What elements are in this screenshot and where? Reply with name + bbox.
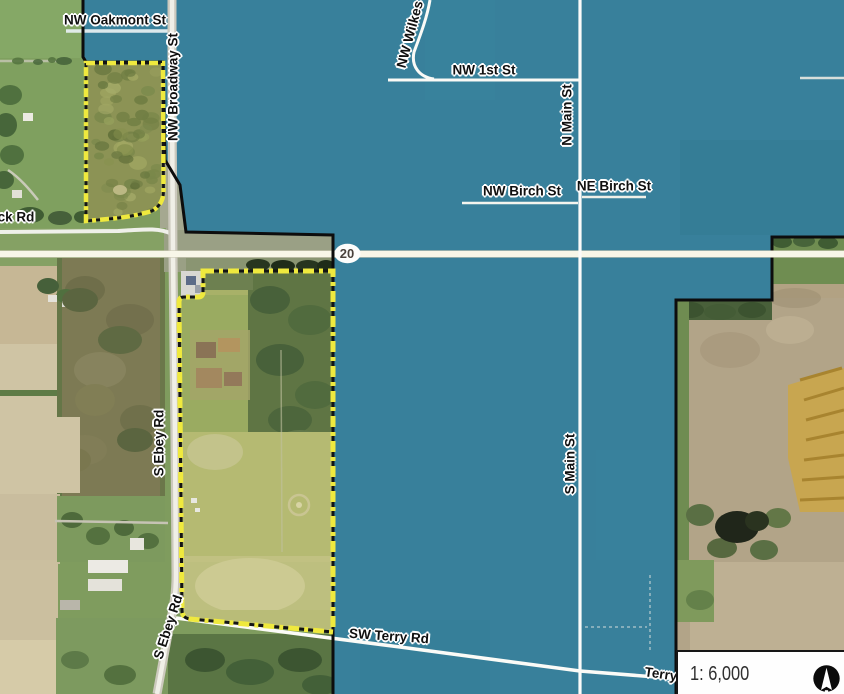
svg-text:20: 20 bbox=[340, 246, 354, 261]
